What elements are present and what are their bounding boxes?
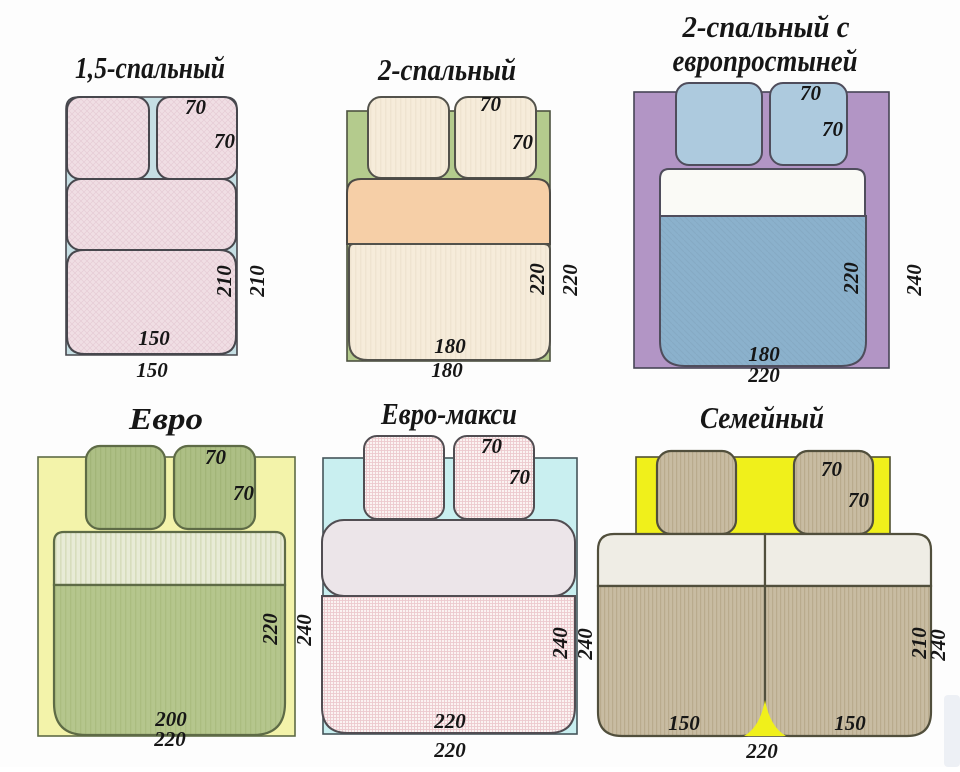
svg-text:220: 220 — [153, 727, 186, 751]
svg-text:150: 150 — [138, 326, 170, 350]
svg-text:Семейный: Семейный — [700, 400, 824, 435]
svg-text:1,5-спальный: 1,5-спальный — [75, 50, 225, 85]
svg-text:180: 180 — [434, 334, 466, 358]
svg-text:240: 240 — [292, 614, 316, 647]
svg-text:70: 70 — [821, 457, 843, 481]
svg-text:70: 70 — [185, 95, 207, 119]
svg-text:210: 210 — [212, 265, 236, 298]
svg-text:150: 150 — [668, 711, 700, 735]
svg-text:70: 70 — [512, 130, 534, 154]
svg-text:180: 180 — [431, 358, 463, 382]
svg-text:220: 220 — [433, 738, 466, 762]
svg-text:70: 70 — [481, 434, 503, 458]
svg-text:2-спальный: 2-спальный — [377, 52, 516, 87]
svg-text:240: 240 — [548, 627, 572, 660]
svg-text:240: 240 — [573, 628, 597, 661]
svg-text:70: 70 — [233, 481, 255, 505]
svg-text:150: 150 — [136, 358, 168, 382]
svg-text:240: 240 — [902, 264, 926, 297]
svg-text:европростыней: европростыней — [673, 43, 858, 78]
svg-text:70: 70 — [205, 445, 227, 469]
svg-text:220: 220 — [258, 613, 282, 646]
svg-text:2-спальный с: 2-спальный с — [682, 9, 850, 44]
svg-text:70: 70 — [800, 81, 822, 105]
svg-text:220: 220 — [747, 363, 780, 387]
svg-text:70: 70 — [822, 117, 844, 141]
svg-text:210: 210 — [245, 265, 269, 298]
svg-text:220: 220 — [433, 709, 466, 733]
svg-text:70: 70 — [214, 129, 236, 153]
svg-text:Евро-макси: Евро-макси — [380, 396, 517, 431]
svg-text:220: 220 — [839, 262, 863, 295]
svg-text:70: 70 — [509, 465, 531, 489]
svg-text:220: 220 — [525, 263, 549, 296]
svg-text:220: 220 — [745, 739, 778, 763]
svg-text:150: 150 — [834, 711, 866, 735]
svg-text:220: 220 — [558, 264, 582, 297]
svg-text:Евро: Евро — [128, 401, 203, 436]
svg-text:70: 70 — [848, 488, 870, 512]
svg-text:70: 70 — [480, 92, 502, 116]
svg-text:240: 240 — [926, 629, 950, 662]
